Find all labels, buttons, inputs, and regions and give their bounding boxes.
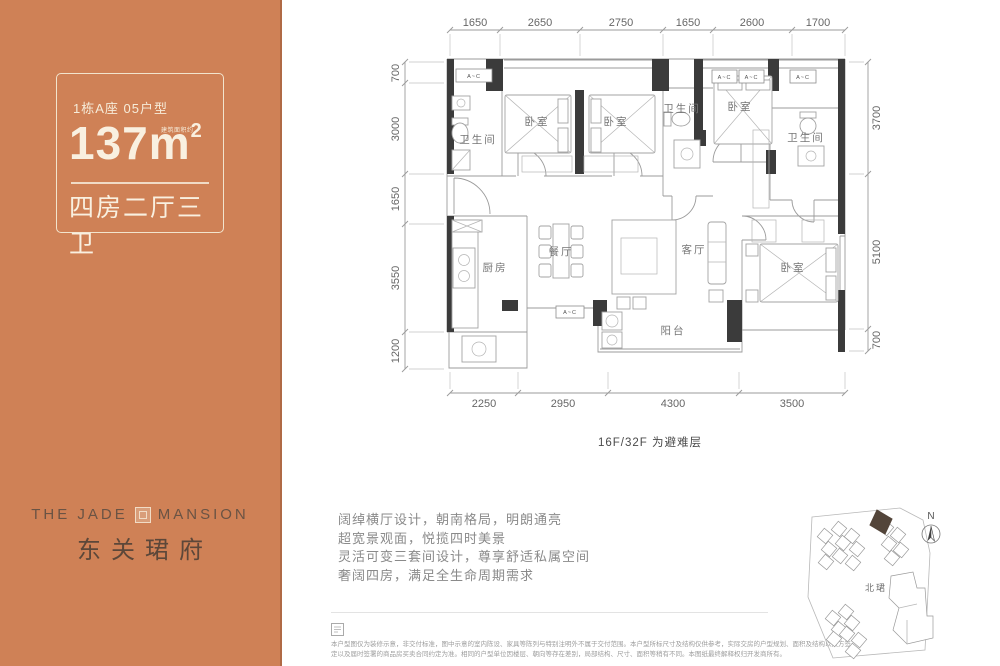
room-label: 卫生间 bbox=[459, 133, 497, 146]
dim-label-left: 700 bbox=[390, 64, 402, 82]
site-area-label: 北珺 bbox=[865, 583, 887, 593]
ac-unit-label: A~C bbox=[796, 75, 810, 81]
unit-label: 1栋A座 05户型 bbox=[73, 98, 168, 117]
brand-chinese: 东关珺府 bbox=[0, 530, 280, 565]
layout-label: 四房二厅三卫 bbox=[69, 188, 223, 260]
dim-label-left: 1200 bbox=[390, 339, 402, 363]
dim-label-left: 3000 bbox=[390, 117, 402, 141]
dim-label-top: 2650 bbox=[528, 17, 552, 29]
dim-label-left: 3550 bbox=[390, 266, 402, 290]
site-building bbox=[831, 521, 846, 536]
footer-divider bbox=[331, 612, 768, 613]
dim-label-right: 700 bbox=[871, 331, 883, 349]
site-building bbox=[849, 541, 864, 556]
ac-unit-label: A~C bbox=[718, 75, 732, 81]
site-building bbox=[845, 555, 860, 570]
marketing-copy: 阔绰横厅设计，朝南格局，明朗通亮 超宽景观面，悦揽四时美景 灵活可变三套间设计，… bbox=[338, 511, 590, 585]
marketing-line: 灵活可变三套间设计，尊享舒适私属空间 bbox=[338, 548, 590, 567]
plan-furniture bbox=[452, 76, 838, 362]
dim-label-bottom: 4300 bbox=[661, 398, 685, 410]
site-building bbox=[817, 528, 832, 543]
brand-en-left: THE JADE bbox=[31, 506, 128, 523]
marketing-line: 超宽景观面，悦揽四时美景 bbox=[338, 530, 590, 549]
room-label: 卧室 bbox=[525, 115, 550, 128]
brand-block: THE JADE MANSION 东关珺府 bbox=[0, 506, 280, 565]
room-label: 卫生间 bbox=[663, 102, 701, 115]
dim-label-bottom: 2950 bbox=[551, 398, 575, 410]
site-building bbox=[818, 554, 833, 569]
marketing-line: 阔绰横厅设计，朝南格局，明朗通亮 bbox=[338, 511, 590, 530]
dim-label-bottom: 2250 bbox=[472, 398, 496, 410]
info-box-divider bbox=[71, 182, 209, 184]
svg-text:N: N bbox=[927, 511, 934, 522]
room-label: 卫生间 bbox=[787, 131, 825, 144]
ac-unit-label: A~C bbox=[467, 74, 481, 80]
area-note: 建筑面积约 bbox=[161, 125, 194, 134]
ac-unit-label: A~C bbox=[563, 310, 577, 316]
area-figure: 137m2 建筑面积约 bbox=[69, 116, 202, 172]
dim-label-top: 1650 bbox=[676, 17, 700, 29]
floorplan-drawing: 1650265027501650260017007003000165035501… bbox=[385, 0, 900, 470]
room-label: 餐厅 bbox=[549, 245, 574, 258]
dim-label-top: 1700 bbox=[806, 17, 830, 29]
dim-label-right: 3700 bbox=[871, 106, 883, 130]
room-label: 卧室 bbox=[781, 261, 806, 274]
left-info-panel: 1栋A座 05户型 137m2 建筑面积约 四房二厅三卫 THE JADE MA… bbox=[0, 0, 282, 666]
brand-en-right: MANSION bbox=[158, 506, 249, 523]
dim-label-top: 1650 bbox=[463, 17, 487, 29]
brand-logo-icon bbox=[135, 507, 151, 523]
site-map: 北珺 N bbox=[795, 488, 1000, 666]
dim-label-bottom: 3500 bbox=[780, 398, 804, 410]
room-label: 客厅 bbox=[682, 243, 707, 256]
room-label: 阳台 bbox=[661, 324, 686, 337]
dim-label-top: 2750 bbox=[609, 17, 633, 29]
refuge-floor-note: 16F/32F 为避难层 bbox=[598, 435, 702, 449]
disclaimer-stamp-icon bbox=[331, 623, 344, 636]
unit-info-box: 1栋A座 05户型 137m2 建筑面积约 四房二厅三卫 bbox=[56, 73, 224, 233]
dim-label-top: 2600 bbox=[740, 17, 764, 29]
dim-label-left: 1650 bbox=[390, 187, 402, 211]
room-label: 卧室 bbox=[604, 115, 629, 128]
floorplan-advert-page: 1栋A座 05户型 137m2 建筑面积约 四房二厅三卫 THE JADE MA… bbox=[0, 0, 1000, 666]
brand-english: THE JADE MANSION bbox=[0, 506, 280, 523]
room-label: 卧室 bbox=[728, 100, 753, 113]
marketing-line: 奢阔四房，满足全生命周期需求 bbox=[338, 567, 590, 586]
dim-label-right: 5100 bbox=[871, 240, 883, 264]
site-building-outline bbox=[889, 572, 933, 644]
ac-unit-label: A~C bbox=[745, 75, 759, 81]
room-label: 厨房 bbox=[483, 261, 508, 274]
